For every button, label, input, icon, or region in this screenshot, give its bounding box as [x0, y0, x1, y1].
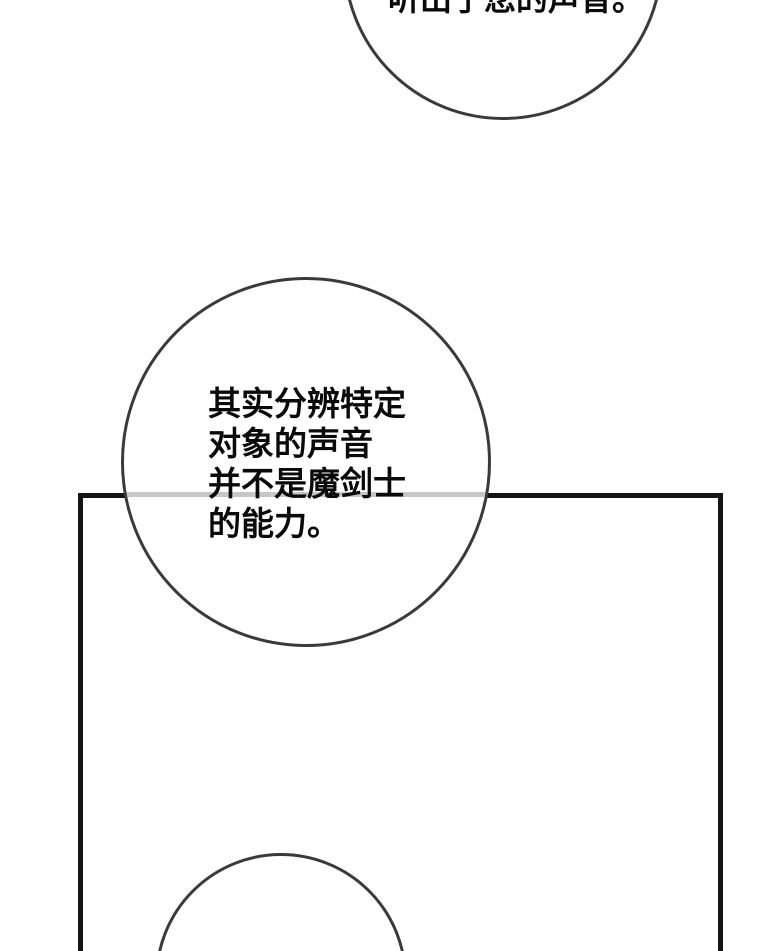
speech-text-line: 其实分辨特定: [208, 384, 406, 424]
speech-text-line: 的能力。: [208, 504, 406, 544]
speech-bubble-top: 听出了您的声音。: [343, 0, 663, 120]
speech-text-top: 听出了您的声音。: [388, 0, 644, 15]
speech-text-line: 并不是魔剑士: [208, 464, 406, 504]
comic-page: 听出了您的声音。 其实分辨特定 对象的声音 并不是魔剑士 的能力。: [0, 0, 760, 951]
speech-bubble-middle: 其实分辨特定 对象的声音 并不是魔剑士 的能力。: [121, 277, 491, 647]
speech-text-middle: 其实分辨特定 对象的声音 并不是魔剑士 的能力。: [208, 384, 406, 544]
speech-text-line: 对象的声音: [208, 424, 406, 464]
